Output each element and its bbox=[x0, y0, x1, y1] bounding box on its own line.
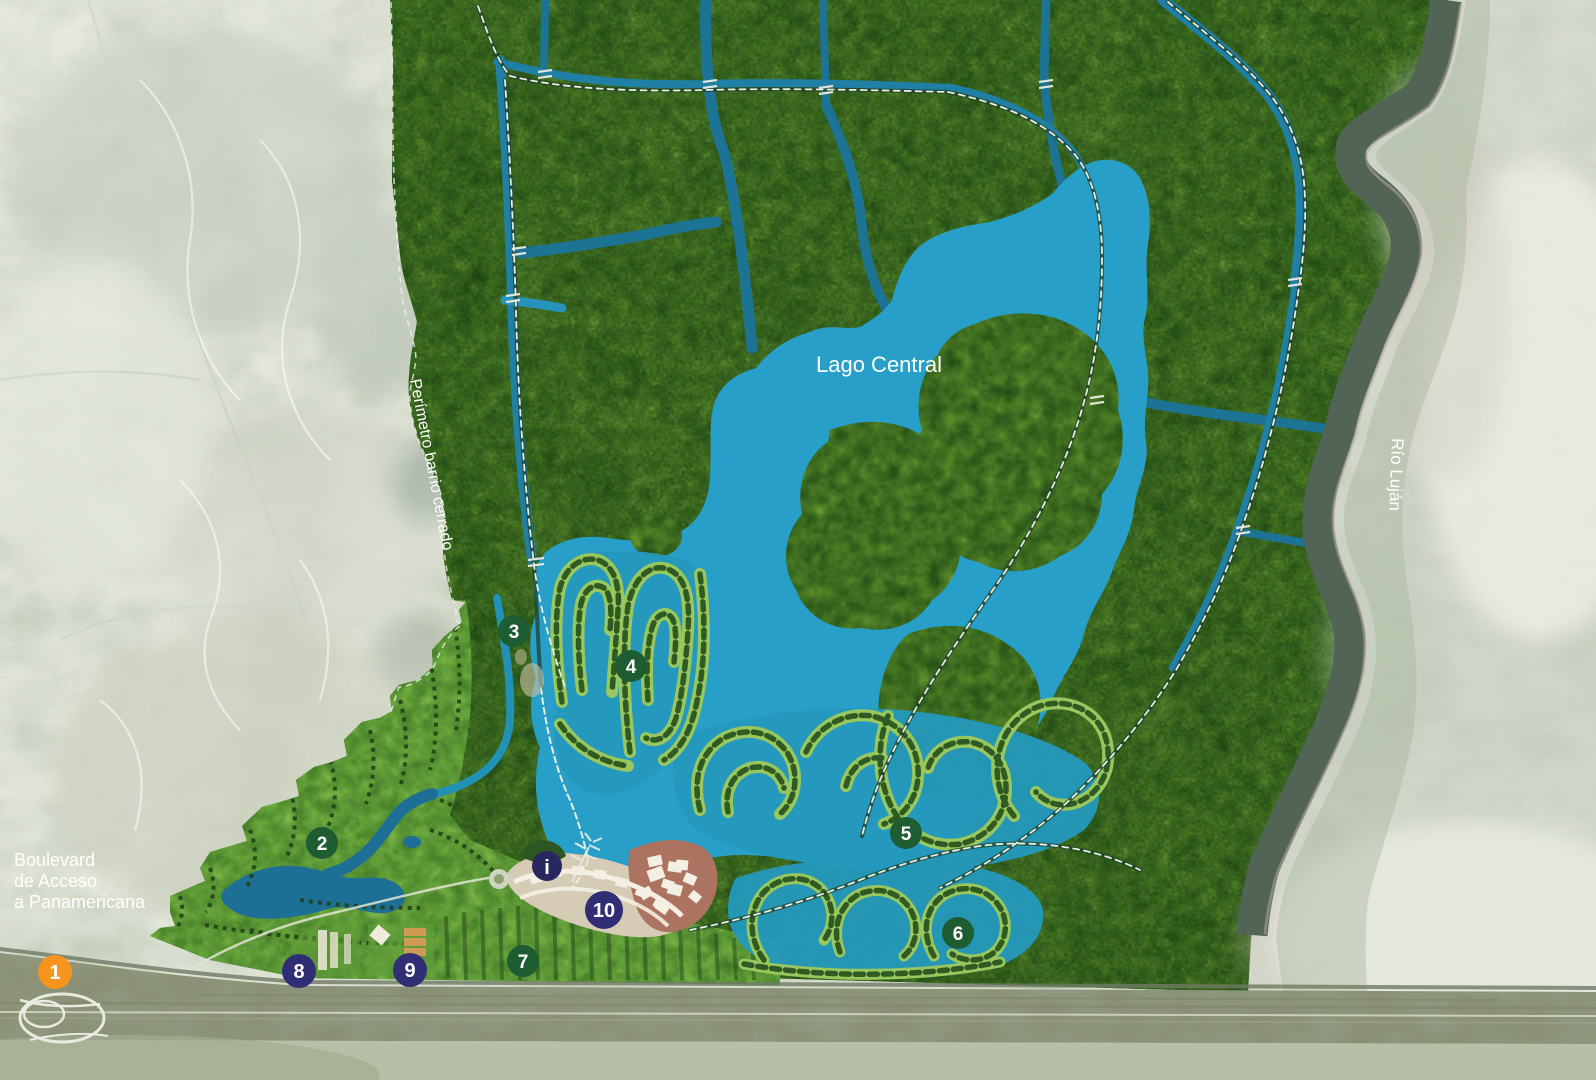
svg-text:Boulevard: Boulevard bbox=[14, 850, 95, 870]
svg-text:10: 10 bbox=[593, 900, 615, 922]
svg-text:3: 3 bbox=[509, 622, 520, 643]
svg-text:8: 8 bbox=[293, 961, 304, 983]
svg-text:4: 4 bbox=[626, 657, 637, 678]
svg-text:6: 6 bbox=[953, 924, 964, 945]
svg-text:9: 9 bbox=[404, 960, 415, 982]
svg-text:de Acceso: de Acceso bbox=[14, 871, 97, 891]
svg-text:1: 1 bbox=[49, 962, 60, 984]
svg-text:a Panamericana: a Panamericana bbox=[14, 892, 146, 912]
svg-text:i: i bbox=[544, 857, 550, 879]
svg-text:7: 7 bbox=[518, 952, 529, 973]
svg-text:Lago Central: Lago Central bbox=[816, 352, 942, 377]
svg-text:5: 5 bbox=[901, 824, 912, 845]
svg-text:Río Luján: Río Luján bbox=[1385, 438, 1407, 511]
svg-text:2: 2 bbox=[317, 834, 328, 855]
